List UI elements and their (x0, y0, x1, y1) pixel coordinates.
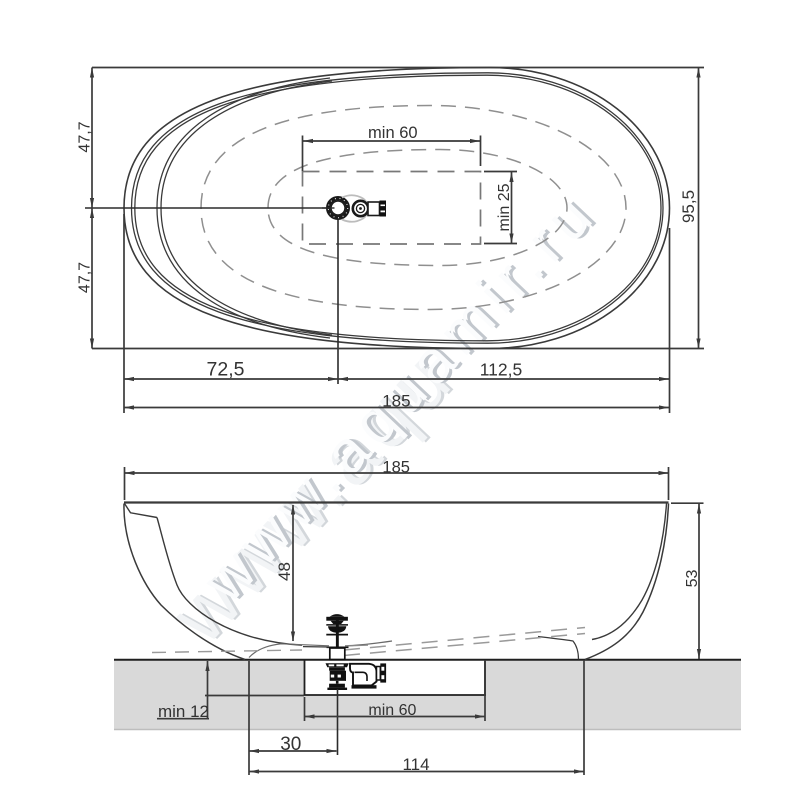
svg-text:114: 114 (402, 755, 429, 774)
svg-text:95,5: 95,5 (679, 190, 698, 223)
svg-text:47,7: 47,7 (77, 121, 94, 152)
svg-text:47,7: 47,7 (77, 262, 94, 293)
svg-text:53: 53 (684, 570, 701, 588)
svg-text:min 60: min 60 (368, 124, 418, 142)
svg-text:min 60: min 60 (368, 702, 416, 719)
svg-text:min 25: min 25 (496, 183, 513, 231)
svg-text:48: 48 (275, 562, 294, 581)
svg-text:185: 185 (382, 458, 410, 476)
svg-text:112,5: 112,5 (480, 360, 523, 380)
svg-text:72,5: 72,5 (207, 359, 245, 381)
svg-text:185: 185 (382, 391, 410, 410)
svg-text:30: 30 (280, 734, 301, 755)
